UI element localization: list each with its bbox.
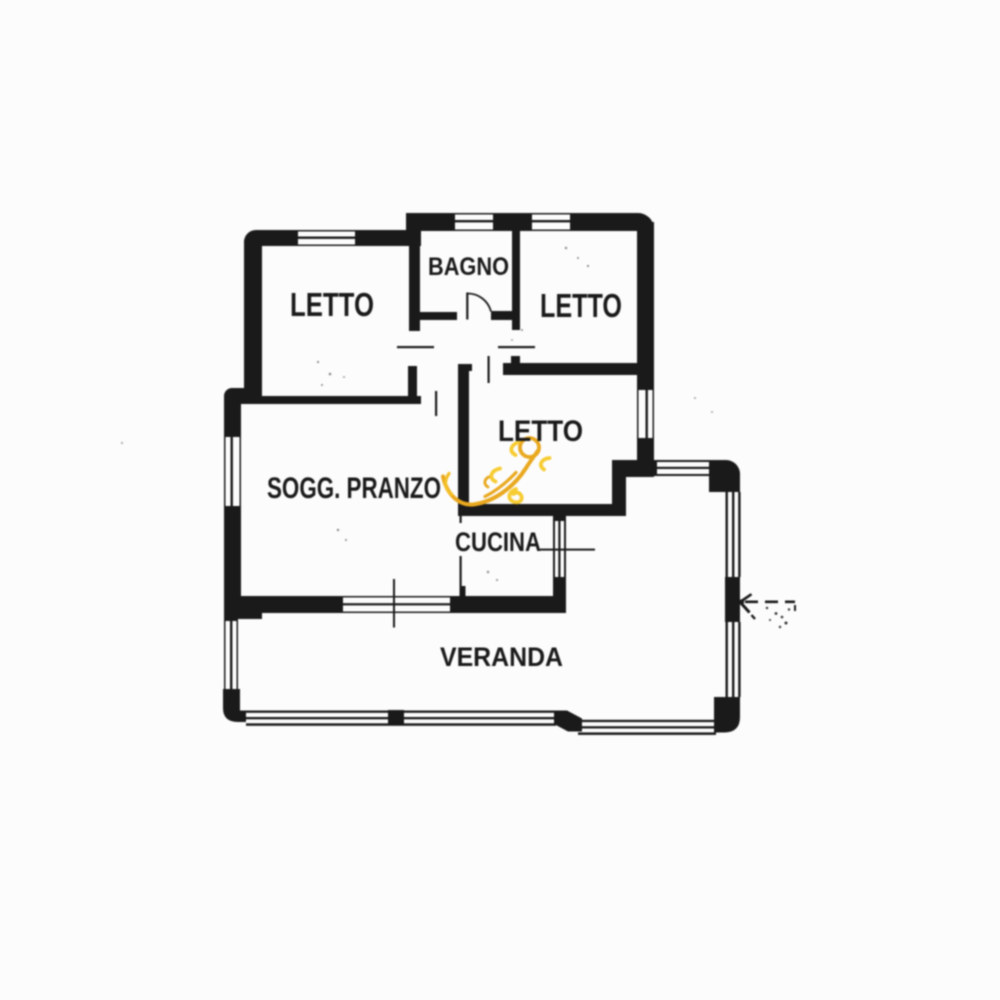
svg-text:SOGG. PRANZO: SOGG. PRANZO: [267, 472, 441, 505]
svg-text:CUCINA: CUCINA: [455, 527, 541, 557]
svg-text:LETTO: LETTO: [540, 287, 622, 324]
svg-text:LETTO: LETTO: [498, 415, 583, 448]
svg-text:BAGNO: BAGNO: [428, 253, 509, 281]
svg-text:LETTO: LETTO: [290, 286, 374, 323]
svg-text:VERANDA: VERANDA: [440, 642, 563, 672]
